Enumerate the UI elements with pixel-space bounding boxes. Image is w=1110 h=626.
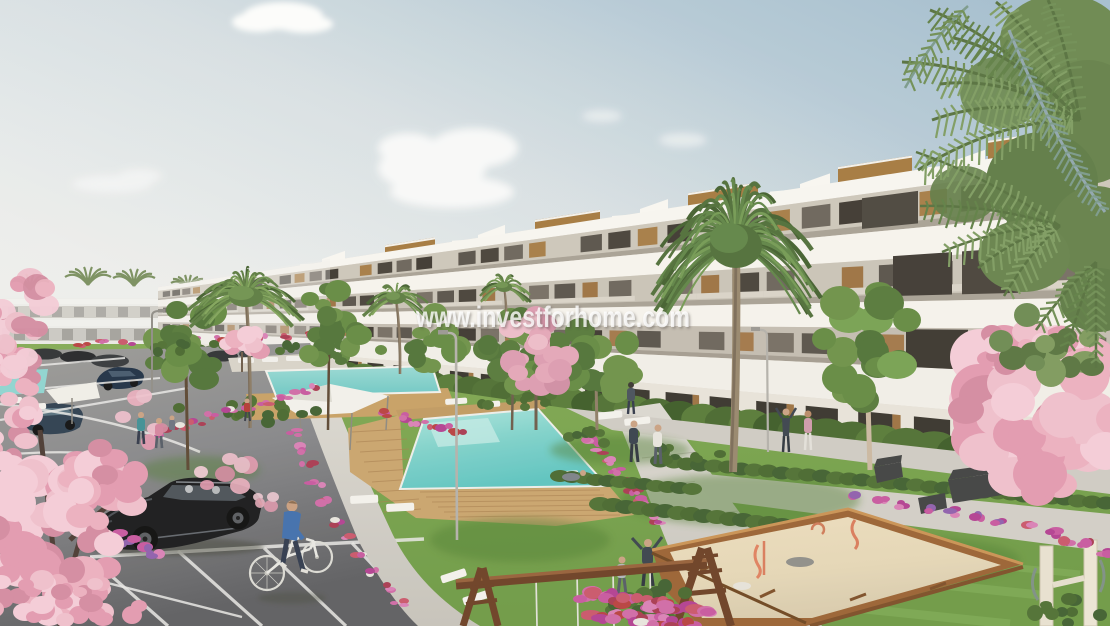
- svg-text:www.investforhome.com: www.investforhome.com: [415, 301, 690, 334]
